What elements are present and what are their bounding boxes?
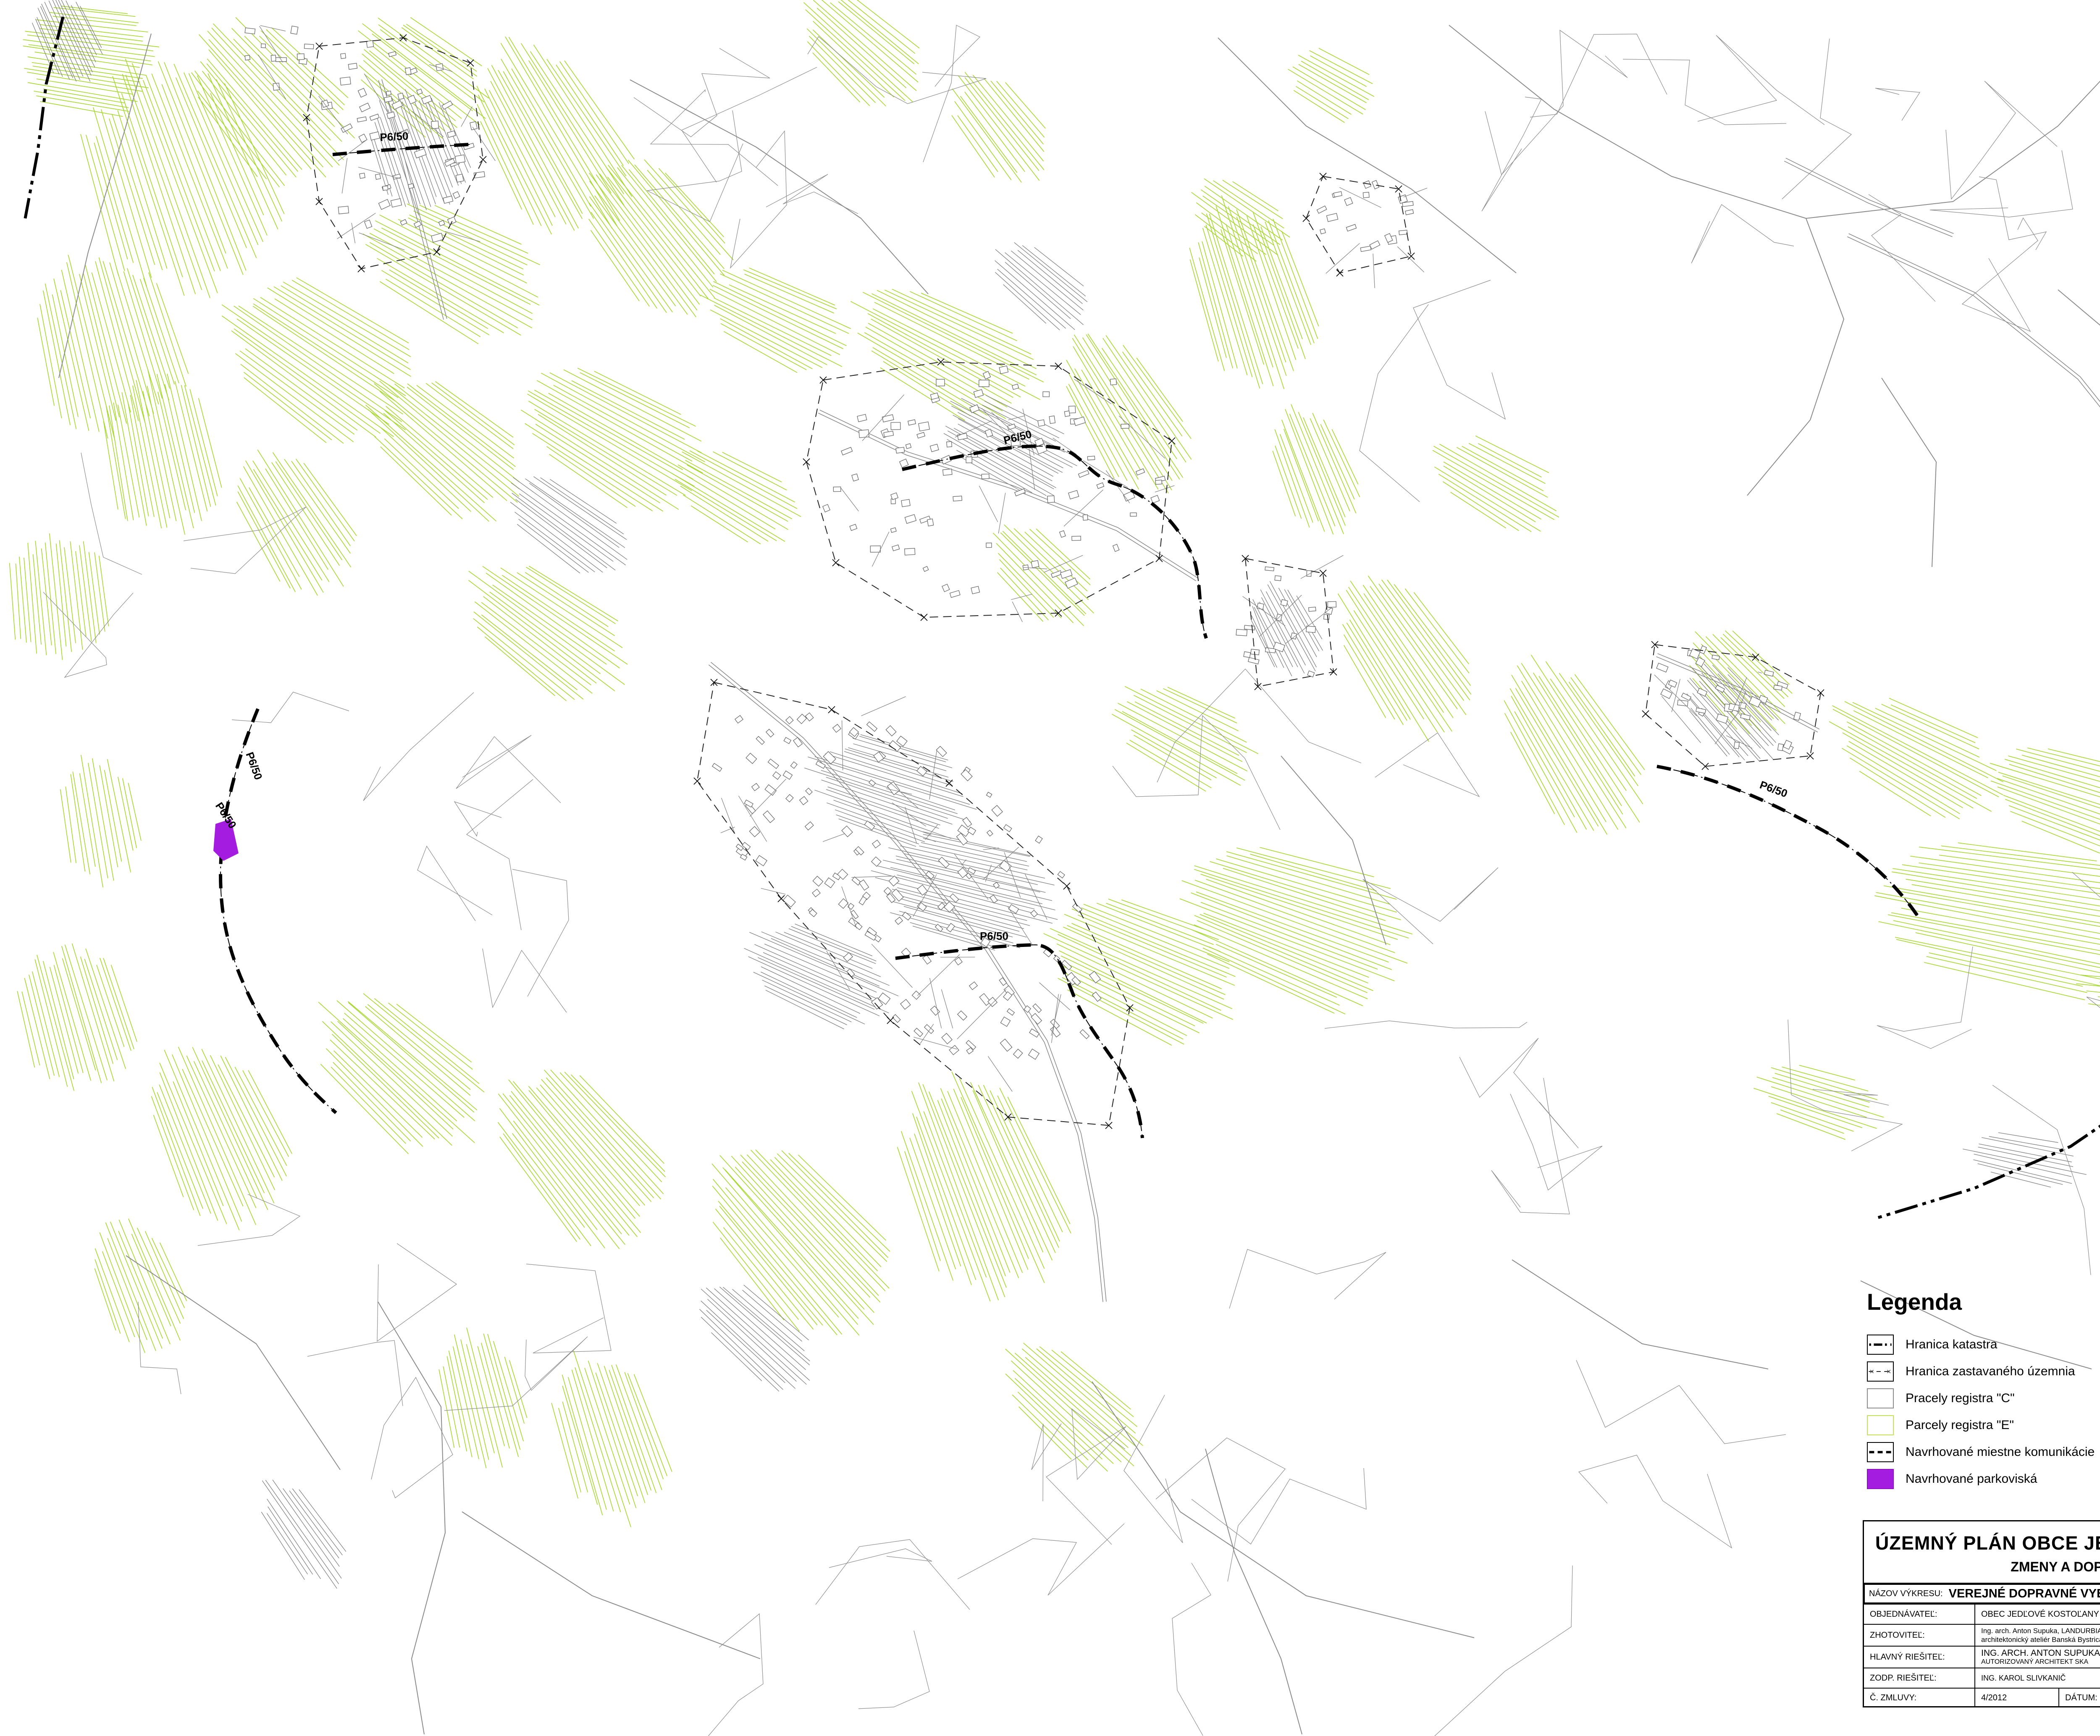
legend: Legenda Hranica katastra Hranica zastava… xyxy=(1867,1288,2100,1496)
legend-item-hranica-zastavaneho-uzemia: Hranica zastavaného územnia xyxy=(1867,1361,2100,1382)
legend-item-navrhovane-parkoviska: Navrhované parkoviská xyxy=(1867,1469,2100,1489)
map-sheet: P6/50P6/50P6/50P6/50P6/50P6/50P6/50P6/50… xyxy=(0,0,2100,1736)
proposed-parking-swatch-icon xyxy=(1867,1469,1894,1489)
contractor-value-cell: Ing. arch. Anton Supuka, LANDURBIAarchit… xyxy=(1975,1625,2100,1647)
plan-subtitle: ZMENY A DOPLNKY Č. 2 xyxy=(1864,1559,2100,1575)
drawing-name-row: NÁZOV VÝKRESU: VEREJNÉ DOPRAVNÉ VYBAVENI… xyxy=(1863,1583,2100,1605)
legend-item-parcely-e: Parcely registra "E" xyxy=(1867,1415,2100,1435)
builtup-boundary-swatch-icon xyxy=(1867,1361,1894,1382)
contract-value-cell: 4/2012 xyxy=(1975,1689,2059,1707)
contract-label-cell: Č. ZMLUVY: xyxy=(1864,1689,1975,1707)
client-label-cell: OBJEDNÁVATEĽ: xyxy=(1864,1605,1975,1625)
road-label: P6/50 xyxy=(1758,778,1789,800)
cadastre-boundary-swatch-icon xyxy=(1867,1335,1894,1355)
legend-item-label: Navrhované miestne komunikácie xyxy=(1906,1445,2095,1459)
client-value-cell: OBEC JEDĽOVÉ KOSTOĽANY xyxy=(1975,1605,2100,1625)
road-label: P6/50 xyxy=(243,750,265,781)
legend-item-label: Navrhované parkoviská xyxy=(1906,1472,2037,1486)
chief-designer-label-cell: HLAVNÝ RIEŠITEĽ: xyxy=(1864,1647,1975,1668)
responsible-designer-value-cell: ING. KAROL SLIVKANIČ xyxy=(1975,1668,2100,1689)
responsible-designer-label-cell: ZODP. RIEŠITEĽ: xyxy=(1864,1668,1975,1689)
legend-item-label: Pracely registra "C" xyxy=(1906,1391,2015,1406)
legend-item-label: Hranica zastavaného územnia xyxy=(1906,1364,2075,1379)
legend-item-label: Parcely registra "E" xyxy=(1906,1418,2014,1432)
plan-title: ÚZEMNÝ PLÁN OBCE JEDĽOVÉ KOSTOĽANY xyxy=(1864,1532,2100,1554)
register-c-swatch-icon xyxy=(1867,1388,1894,1408)
legend-item-label: Hranica katastra xyxy=(1906,1337,1997,1352)
drawing-name-value: VEREJNÉ DOPRAVNÉ VYBAVENIE xyxy=(1949,1587,2100,1601)
chief-designer-value-cell: ING. ARCH. ANTON SUPUKAAUTORIZOVANÝ ARCH… xyxy=(1975,1647,2100,1668)
contractor-label-cell: ZHOTOVITEĽ: xyxy=(1864,1625,1975,1647)
map-canvas: P6/50P6/50P6/50P6/50P6/50P6/50P6/50P6/50… xyxy=(0,0,2100,1736)
title-block: ÚZEMNÝ PLÁN OBCE JEDĽOVÉ KOSTOĽANY ZMENY… xyxy=(1863,1520,2100,1707)
legend-item-hranica-katastra: Hranica katastra xyxy=(1867,1335,2100,1355)
proposed-road-swatch-icon xyxy=(1867,1442,1894,1462)
legend-item-navrhovane-komunikacie: Navrhované miestne komunikácie xyxy=(1867,1442,2100,1462)
legend-item-parcely-c: Pracely registra "C" xyxy=(1867,1388,2100,1408)
register-e-swatch-icon xyxy=(1867,1415,1894,1435)
legend-title: Legenda xyxy=(1867,1288,2100,1315)
road-label: P6/50 xyxy=(380,129,409,144)
date-label-cell: DÁTUM: xyxy=(2059,1689,2100,1707)
drawing-name-label: NÁZOV VÝKRESU: xyxy=(1869,1589,1943,1599)
road-label: P6/50 xyxy=(980,930,1008,942)
